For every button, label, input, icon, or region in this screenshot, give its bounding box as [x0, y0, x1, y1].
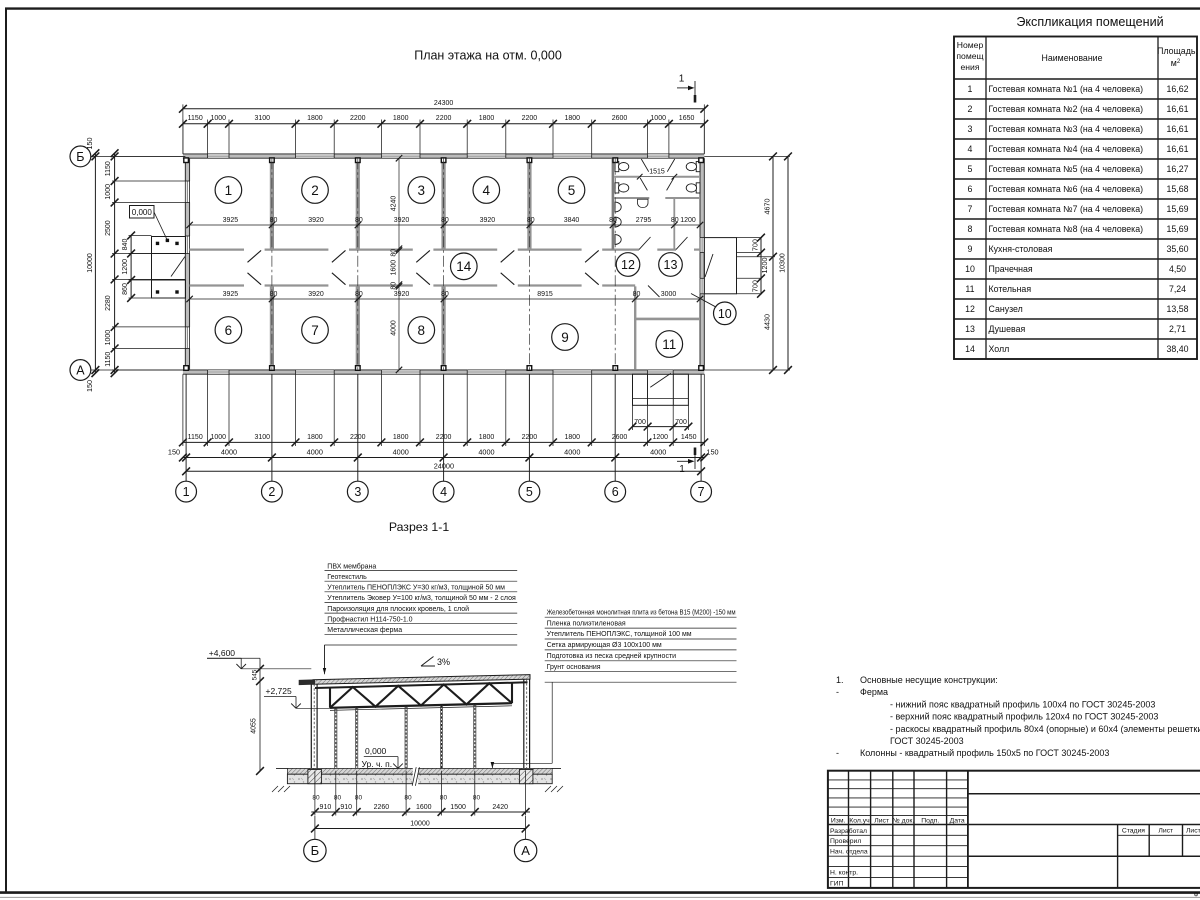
- svg-text:Стадия: Стадия: [1122, 827, 1145, 834]
- svg-text:Ф: Ф: [1194, 893, 1199, 899]
- svg-text:24300: 24300: [434, 100, 454, 107]
- svg-text:2420: 2420: [492, 804, 508, 811]
- svg-text:1600: 1600: [416, 804, 432, 811]
- svg-text:Лист: Лист: [1158, 827, 1173, 834]
- svg-text:14: 14: [965, 344, 975, 354]
- svg-text:1150: 1150: [105, 161, 112, 176]
- svg-text:80: 80: [671, 217, 679, 224]
- svg-text:2,71: 2,71: [1169, 324, 1186, 334]
- svg-text:5: 5: [568, 183, 576, 198]
- svg-text:Лист: Лист: [874, 817, 889, 824]
- svg-text:700: 700: [750, 239, 759, 251]
- svg-text:0,000: 0,000: [132, 208, 153, 217]
- svg-text:2: 2: [268, 485, 275, 499]
- svg-text:1200: 1200: [122, 259, 129, 275]
- svg-text:1000: 1000: [211, 434, 227, 441]
- svg-text:Номер: Номер: [957, 40, 984, 50]
- svg-text:1800: 1800: [307, 434, 323, 441]
- svg-text:2200: 2200: [350, 434, 366, 441]
- svg-text:А: А: [521, 843, 530, 858]
- svg-text:1: 1: [183, 485, 190, 499]
- svg-text:80: 80: [633, 291, 641, 298]
- svg-text:1000: 1000: [105, 330, 112, 346]
- svg-text:0,000: 0,000: [365, 746, 387, 756]
- svg-text:80: 80: [441, 217, 449, 224]
- svg-text:3100: 3100: [255, 115, 271, 122]
- svg-text:6: 6: [225, 323, 233, 338]
- svg-text:4: 4: [968, 144, 973, 154]
- svg-text:4000: 4000: [221, 448, 237, 457]
- svg-text:А: А: [76, 364, 85, 378]
- svg-text:3920: 3920: [394, 291, 410, 298]
- svg-text:1150: 1150: [105, 352, 112, 367]
- svg-text:1200: 1200: [680, 217, 696, 224]
- svg-text:Гостевая комната №5 (на 4 чело: Гостевая комната №5 (на 4 человека): [989, 164, 1144, 174]
- svg-text:3: 3: [968, 124, 973, 134]
- svg-text:Металлическая ферма: Металлическая ферма: [327, 627, 402, 634]
- svg-text:2200: 2200: [350, 115, 366, 122]
- svg-text:4,50: 4,50: [1169, 264, 1186, 274]
- svg-text:7: 7: [311, 323, 319, 338]
- svg-text:545: 545: [251, 669, 258, 680]
- svg-text:3: 3: [354, 485, 361, 499]
- svg-text:Экспликация помещений: Экспликация помещений: [1016, 15, 1163, 29]
- svg-text:1150: 1150: [188, 434, 203, 441]
- svg-text:План этажа на отм. 0,000: План этажа на отм. 0,000: [414, 49, 562, 63]
- svg-text:80: 80: [609, 217, 617, 224]
- svg-text:Прачечная: Прачечная: [989, 264, 1033, 274]
- svg-text:Листов: Листов: [1186, 827, 1200, 834]
- svg-text:3920: 3920: [480, 217, 496, 224]
- svg-text:2795: 2795: [636, 217, 652, 224]
- svg-text:6: 6: [968, 184, 973, 194]
- svg-text:Гостевая комната №6 (на 4 чело: Гостевая комната №6 (на 4 человека): [989, 184, 1144, 194]
- svg-text:2600: 2600: [612, 434, 628, 441]
- svg-text:3000: 3000: [661, 291, 677, 298]
- svg-text:Холл: Холл: [989, 344, 1010, 354]
- svg-text:24000: 24000: [434, 461, 454, 470]
- svg-text:3100: 3100: [255, 434, 271, 441]
- svg-text:80: 80: [527, 217, 535, 224]
- svg-text:4055: 4055: [250, 718, 257, 734]
- svg-text:Основные несущие конструкции:: Основные несущие конструкции:: [860, 675, 998, 685]
- svg-text:5: 5: [968, 164, 973, 174]
- svg-text:4000: 4000: [478, 448, 494, 457]
- svg-text:80: 80: [441, 291, 449, 298]
- svg-text:2260: 2260: [374, 804, 390, 811]
- svg-text:2600: 2600: [612, 115, 628, 122]
- svg-text:13,58: 13,58: [1166, 304, 1188, 314]
- svg-text:80: 80: [404, 795, 412, 802]
- svg-text:Кухня-столовая: Кухня-столовая: [989, 244, 1053, 254]
- svg-text:2: 2: [311, 183, 319, 198]
- svg-text:80: 80: [334, 795, 342, 802]
- svg-text:35,60: 35,60: [1166, 244, 1188, 254]
- svg-text:Гостевая комната №8 (на 4 чело: Гостевая комната №8 (на 4 человека): [989, 224, 1144, 234]
- svg-text:1: 1: [679, 464, 685, 475]
- svg-text:80: 80: [355, 795, 363, 802]
- svg-text:1: 1: [968, 84, 973, 94]
- svg-text:14: 14: [456, 259, 472, 274]
- svg-text:3925: 3925: [223, 291, 239, 298]
- svg-text:Наименование: Наименование: [1042, 53, 1103, 63]
- svg-text:Душевая: Душевая: [989, 324, 1026, 334]
- svg-text:15,69: 15,69: [1166, 204, 1188, 214]
- svg-text:- раскосы квадратный профиль 8: - раскосы квадратный профиль 80х4 (опорн…: [890, 724, 1200, 734]
- svg-text:Нач. отдела: Нач. отдела: [830, 849, 868, 856]
- svg-text:+4,600: +4,600: [209, 648, 236, 658]
- svg-text:15,69: 15,69: [1166, 224, 1188, 234]
- svg-text:4240: 4240: [390, 196, 397, 212]
- svg-text:помещ: помещ: [956, 51, 983, 61]
- svg-text:Изм.: Изм.: [831, 817, 846, 824]
- svg-text:2200: 2200: [436, 434, 452, 441]
- svg-text:8915: 8915: [537, 291, 553, 298]
- svg-text:4430: 4430: [762, 314, 771, 330]
- svg-text:1800: 1800: [393, 115, 409, 122]
- svg-text:4: 4: [483, 183, 491, 198]
- svg-text:Утеплитель ПЕНОПЛЭКС У=30 кг/м: Утеплитель ПЕНОПЛЭКС У=30 кг/м3, толщино…: [327, 584, 505, 592]
- svg-text:9: 9: [968, 244, 973, 254]
- svg-text:ПВХ мембрана: ПВХ мембрана: [327, 562, 376, 570]
- svg-text:1200: 1200: [653, 434, 669, 441]
- svg-text:Разработал: Разработал: [830, 827, 867, 835]
- svg-text:2500: 2500: [105, 220, 112, 236]
- svg-text:1650: 1650: [679, 115, 695, 122]
- svg-text:6: 6: [612, 485, 619, 499]
- svg-text:16,62: 16,62: [1166, 84, 1188, 94]
- svg-text:700: 700: [750, 280, 759, 292]
- svg-text:Гостевая комната №1 (на 4 чело: Гостевая комната №1 (на 4 человека): [989, 84, 1144, 94]
- svg-text:4670: 4670: [762, 199, 771, 215]
- svg-text:1800: 1800: [565, 115, 581, 122]
- svg-text:Котельная: Котельная: [989, 284, 1032, 294]
- svg-text:10000: 10000: [410, 820, 430, 827]
- svg-text:Гостевая комната №2 (на 4 чело: Гостевая комната №2 (на 4 человека): [989, 104, 1144, 114]
- svg-text:1515: 1515: [649, 169, 665, 176]
- svg-text:1800: 1800: [565, 434, 581, 441]
- svg-text:Разрез 1-1: Разрез 1-1: [389, 520, 450, 534]
- svg-text:4000: 4000: [650, 448, 666, 457]
- svg-text:8: 8: [968, 224, 973, 234]
- svg-text:+2,725: +2,725: [266, 686, 293, 696]
- svg-text:80: 80: [355, 217, 363, 224]
- svg-text:ГОСТ 30245-2003: ГОСТ 30245-2003: [890, 736, 964, 746]
- svg-text:12: 12: [621, 258, 635, 272]
- svg-text:Гостевая комната №7 (на 4 чело: Гостевая комната №7 (на 4 человека): [989, 204, 1144, 214]
- svg-text:Сетка армирующая Ø3 100х100 мм: Сетка армирующая Ø3 100х100 мм: [547, 642, 662, 649]
- svg-text:16,61: 16,61: [1166, 144, 1188, 154]
- svg-text:Санузел: Санузел: [989, 304, 1023, 314]
- svg-text:Утеплитель Эковер У=100 кг/м3,: Утеплитель Эковер У=100 кг/м3, толщиной …: [327, 594, 516, 602]
- svg-text:2280: 2280: [105, 295, 112, 311]
- svg-text:-: -: [836, 687, 839, 697]
- svg-text:15,68: 15,68: [1166, 184, 1188, 194]
- svg-text:3%: 3%: [437, 657, 450, 667]
- svg-text:80: 80: [312, 795, 320, 802]
- svg-text:10000: 10000: [87, 253, 94, 273]
- svg-text:12: 12: [965, 304, 975, 314]
- svg-text:7,24: 7,24: [1169, 284, 1186, 294]
- svg-text:16,27: 16,27: [1166, 164, 1188, 174]
- svg-text:910: 910: [320, 804, 332, 811]
- svg-text:2200: 2200: [436, 115, 452, 122]
- svg-text:1800: 1800: [479, 434, 495, 441]
- svg-text:4000: 4000: [307, 448, 323, 457]
- svg-text:38,40: 38,40: [1166, 344, 1188, 354]
- svg-text:1500: 1500: [450, 804, 466, 811]
- svg-text:1800: 1800: [393, 434, 409, 441]
- svg-text:1450: 1450: [681, 434, 697, 441]
- svg-text:Гостевая комната №4 (на 4 чело: Гостевая комната №4 (на 4 человека): [989, 144, 1144, 154]
- svg-text:Геотекстиль: Геотекстиль: [327, 574, 367, 581]
- svg-text:1150: 1150: [188, 115, 203, 122]
- svg-text:80: 80: [473, 795, 481, 802]
- svg-text:Пароизоляция для плоских крове: Пароизоляция для плоских кровель, 1 слой: [327, 605, 469, 613]
- svg-text:Железобетонная монолитная плит: Железобетонная монолитная плита из бетон…: [547, 608, 736, 616]
- svg-text:840: 840: [122, 239, 129, 251]
- svg-text:Проверил: Проверил: [830, 838, 861, 845]
- svg-text:Подготовка из песка средней кр: Подготовка из песка средней крупности: [547, 652, 677, 660]
- svg-text:7: 7: [968, 204, 973, 214]
- svg-text:910: 910: [340, 804, 352, 811]
- svg-text:80: 80: [390, 282, 397, 290]
- svg-text:1800: 1800: [479, 115, 495, 122]
- svg-text:4: 4: [440, 485, 447, 499]
- svg-text:1200: 1200: [760, 258, 769, 274]
- svg-text:4000: 4000: [564, 448, 580, 457]
- svg-text:4000: 4000: [393, 448, 409, 457]
- svg-text:1.: 1.: [836, 675, 844, 685]
- svg-text:3920: 3920: [394, 217, 410, 224]
- svg-text:80: 80: [355, 291, 363, 298]
- svg-text:Грунт основания: Грунт основания: [547, 664, 601, 671]
- svg-text:Подп.: Подп.: [921, 817, 939, 824]
- svg-text:4000: 4000: [390, 320, 397, 336]
- svg-text:7: 7: [698, 485, 705, 499]
- svg-text:9: 9: [561, 330, 569, 345]
- svg-text:3920: 3920: [308, 217, 324, 224]
- svg-text:Площадь,: Площадь,: [1157, 46, 1198, 56]
- svg-text:Колонны - квадратный профиль 1: Колонны - квадратный профиль 150х5 по ГО…: [860, 748, 1109, 758]
- svg-text:80: 80: [440, 795, 448, 802]
- svg-text:16,61: 16,61: [1166, 104, 1188, 114]
- svg-text:Ур. ч. п.: Ур. ч. п.: [362, 759, 393, 769]
- svg-text:Б: Б: [311, 843, 320, 858]
- svg-text:3840: 3840: [564, 217, 580, 224]
- svg-text:700: 700: [634, 419, 646, 426]
- svg-text:1000: 1000: [211, 115, 227, 122]
- svg-text:3925: 3925: [223, 217, 239, 224]
- svg-text:5: 5: [526, 485, 533, 499]
- svg-text:10: 10: [965, 264, 975, 274]
- svg-text:1800: 1800: [307, 115, 323, 122]
- svg-text:Ферма: Ферма: [860, 687, 888, 697]
- svg-text:2200: 2200: [522, 115, 538, 122]
- svg-text:Профнастил Н114-750-1.0: Профнастил Н114-750-1.0: [327, 616, 412, 623]
- svg-text:8: 8: [418, 323, 426, 338]
- svg-text:80: 80: [270, 217, 278, 224]
- svg-text:1: 1: [225, 183, 233, 198]
- svg-text:Гостевая комната №3 (на 4 чело: Гостевая комната №3 (на 4 человека): [989, 124, 1144, 134]
- svg-text:1000: 1000: [105, 184, 112, 200]
- svg-text:1600: 1600: [390, 260, 397, 276]
- svg-text:3920: 3920: [308, 291, 324, 298]
- svg-text:11: 11: [965, 284, 974, 294]
- svg-text:3: 3: [418, 183, 426, 198]
- svg-text:13: 13: [965, 324, 975, 334]
- svg-text:Пленка полиэтиленовая: Пленка полиэтиленовая: [547, 620, 626, 627]
- svg-text:150: 150: [168, 448, 180, 457]
- svg-text:1000: 1000: [650, 115, 666, 122]
- svg-text:ГИП: ГИП: [830, 880, 844, 887]
- svg-text:ения: ения: [961, 62, 980, 72]
- svg-text:860: 860: [122, 283, 129, 295]
- svg-text:80: 80: [270, 291, 278, 298]
- svg-text:Кол.уч: Кол.уч: [849, 817, 870, 824]
- svg-text:1: 1: [679, 74, 685, 85]
- svg-text:150: 150: [706, 448, 718, 457]
- svg-text:16,61: 16,61: [1166, 124, 1188, 134]
- svg-text:2: 2: [968, 104, 973, 114]
- svg-text:Н. контр.: Н. контр.: [830, 870, 858, 877]
- svg-text:700: 700: [675, 419, 687, 426]
- svg-text:13: 13: [664, 258, 678, 272]
- svg-text:№ док.: № док.: [893, 817, 915, 824]
- svg-text:10: 10: [718, 307, 732, 321]
- svg-text:Дата: Дата: [950, 817, 965, 824]
- svg-text:- нижний пояс квадратный профи: - нижний пояс квадратный профиль 100х4 п…: [890, 699, 1155, 709]
- svg-text:- верхний пояс квадратный проф: - верхний пояс квадратный профиль 120х4 …: [890, 712, 1158, 722]
- svg-text:2200: 2200: [522, 434, 538, 441]
- svg-text:11: 11: [662, 337, 676, 352]
- svg-text:10300: 10300: [779, 253, 786, 273]
- svg-text:Утеплитель ПЕНОПЛЭКС, толщиной: Утеплитель ПЕНОПЛЭКС, толщиной 100 мм: [547, 630, 692, 638]
- svg-text:150: 150: [85, 380, 94, 392]
- svg-text:80: 80: [390, 249, 397, 257]
- svg-text:-: -: [836, 748, 839, 758]
- svg-text:Б: Б: [76, 150, 84, 164]
